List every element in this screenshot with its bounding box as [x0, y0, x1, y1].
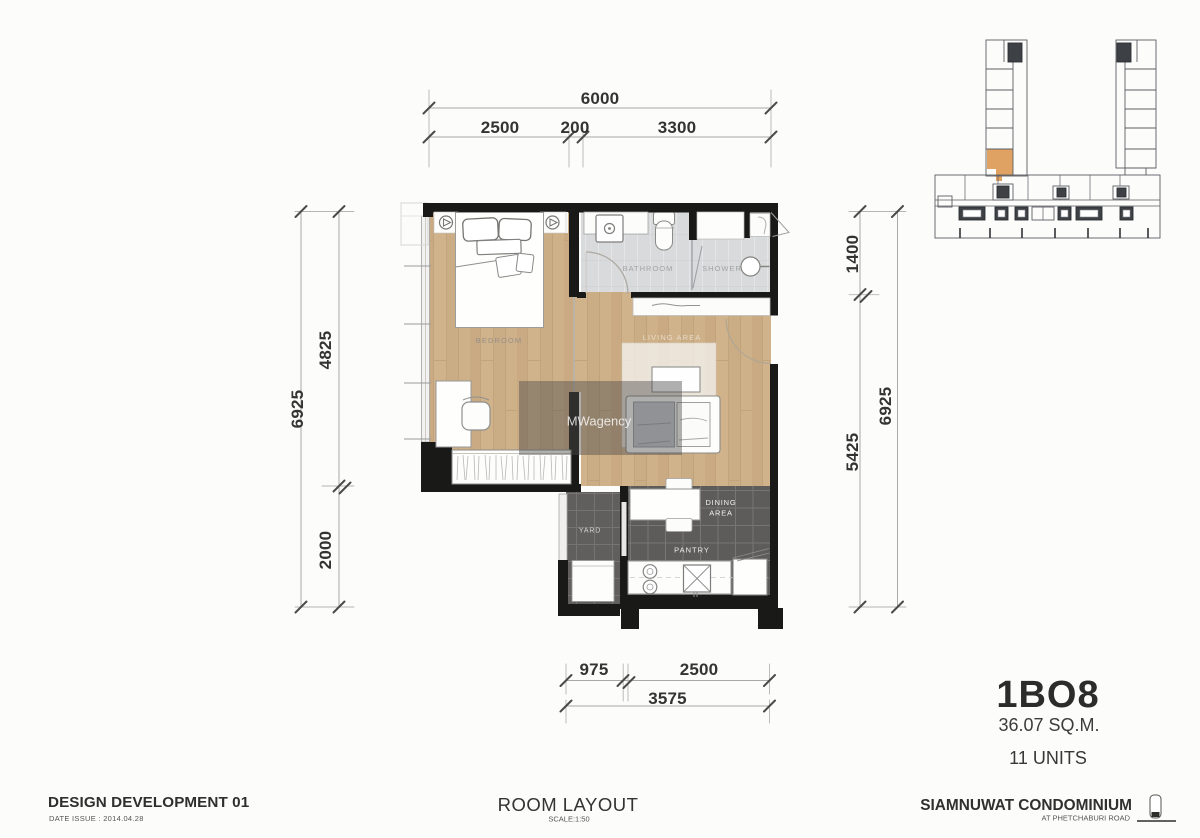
svg-text:SCALE:1:50: SCALE:1:50: [548, 815, 589, 824]
svg-text:2500: 2500: [481, 118, 520, 137]
svg-text:PANTRY: PANTRY: [674, 546, 710, 555]
svg-text:DESIGN DEVELOPMENT 01: DESIGN DEVELOPMENT 01: [48, 794, 250, 811]
svg-text:LIVING AREA: LIVING AREA: [643, 333, 702, 342]
svg-text:2500: 2500: [680, 660, 719, 679]
svg-text:DINING: DINING: [705, 498, 736, 507]
svg-text:975: 975: [580, 660, 609, 679]
svg-text:6925: 6925: [288, 390, 307, 429]
svg-text:6000: 6000: [581, 89, 620, 108]
svg-text:AT PHETCHABURI ROAD: AT PHETCHABURI ROAD: [1042, 814, 1131, 823]
svg-text:AREA: AREA: [709, 509, 733, 518]
svg-text:1400: 1400: [843, 235, 862, 274]
svg-text:YARD: YARD: [579, 528, 601, 535]
svg-text:11 UNITS: 11 UNITS: [1009, 748, 1087, 768]
svg-text:BATHROOM: BATHROOM: [623, 264, 674, 273]
svg-text:1BO8: 1BO8: [996, 674, 1099, 716]
svg-text:4825: 4825: [316, 331, 335, 370]
svg-text:6925: 6925: [876, 387, 895, 426]
svg-text:36.07 SQ.M.: 36.07 SQ.M.: [998, 715, 1099, 735]
svg-text:MWagency: MWagency: [567, 414, 632, 429]
svg-text:BEDROOM: BEDROOM: [476, 336, 522, 345]
svg-text:SHOWER: SHOWER: [702, 264, 742, 273]
svg-text:2000: 2000: [316, 531, 335, 570]
svg-text:ROOM LAYOUT: ROOM LAYOUT: [498, 794, 639, 815]
svg-text:5425: 5425: [843, 433, 862, 472]
svg-text:200: 200: [561, 118, 590, 137]
svg-text:3575: 3575: [648, 689, 687, 708]
svg-text:SIAMNUWAT CONDOMINIUM: SIAMNUWAT CONDOMINIUM: [920, 797, 1132, 814]
svg-text:DATE ISSUE : 2014.04.28: DATE ISSUE : 2014.04.28: [49, 814, 144, 823]
svg-text:3300: 3300: [658, 118, 697, 137]
